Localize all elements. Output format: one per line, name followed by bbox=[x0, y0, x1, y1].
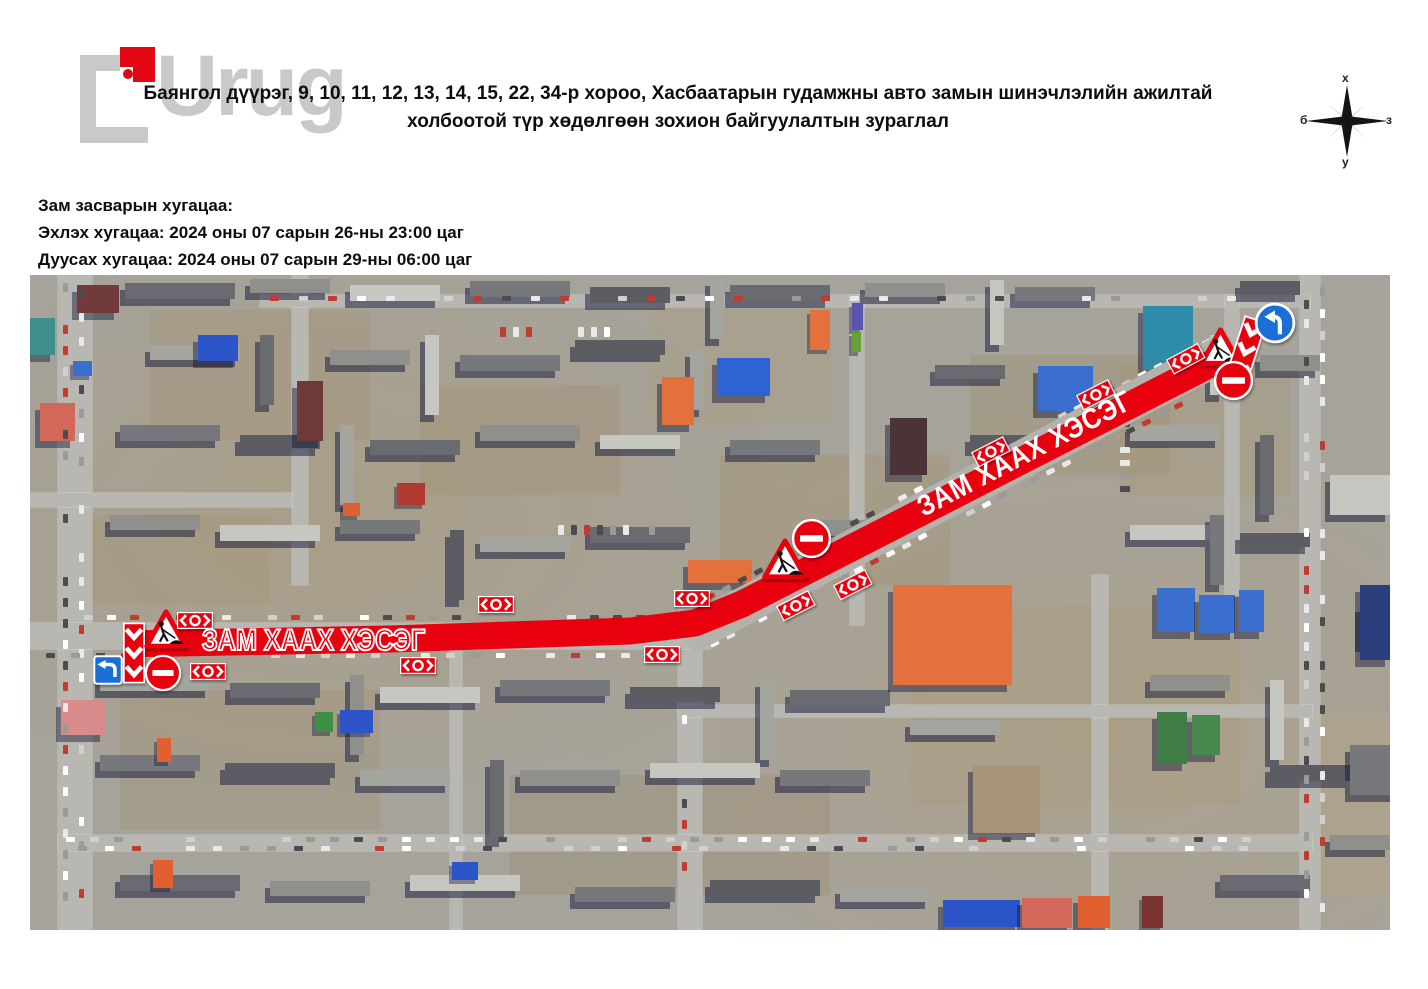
compass-west-label: б bbox=[1300, 113, 1307, 127]
barrier-board-sign bbox=[644, 646, 680, 668]
barrier-board-sign bbox=[674, 590, 710, 612]
schedule-heading: Зам засварын хугацаа: bbox=[38, 192, 472, 219]
logo-dot bbox=[123, 69, 133, 79]
title-line-2: холбоотой түр хөдөлгөөн зохион байгуулал… bbox=[44, 108, 1312, 136]
barrier-board-sign bbox=[400, 657, 436, 679]
repair-schedule: Зам засварын хугацаа: Эхлэх хугацаа: 202… bbox=[38, 192, 472, 273]
no-entry-sign-left bbox=[144, 654, 182, 697]
no-entry-sign-right bbox=[1213, 360, 1254, 406]
title-line-1: Баянгол дүүрэг, 9, 10, 11, 12, 13, 14, 1… bbox=[44, 80, 1312, 108]
poster-page: Urug Баянгол дүүрэг, 9, 10, 11, 12, 13, … bbox=[0, 0, 1428, 989]
closure-label-horizontal: ЗАМ ХААХ ХЭСЭГ bbox=[202, 626, 425, 656]
no-entry-sign-mid bbox=[791, 518, 832, 564]
compass-east-label: з bbox=[1386, 113, 1392, 127]
compass-rose: х у б з bbox=[1302, 75, 1392, 170]
barrier-board-sign bbox=[478, 596, 514, 618]
compass-star-icon bbox=[1302, 75, 1392, 165]
chevron-barrier-panel-left bbox=[123, 617, 145, 694]
barrier-board-sign bbox=[190, 663, 226, 685]
detour-left-sign bbox=[93, 655, 123, 690]
compass-south-label: у bbox=[1342, 155, 1349, 169]
schedule-end: Дуусах хугацаа: 2024 оны 07 сарын 29-ны … bbox=[38, 246, 472, 273]
satellite-map: ЗАМ ХААХ ХЭСЭГ ЗАМ ХААХ ХЭСЭГ bbox=[30, 275, 1390, 930]
page-title: Баянгол дүүрэг, 9, 10, 11, 12, 13, 14, 1… bbox=[44, 80, 1312, 136]
schedule-start: Эхлэх хугацаа: 2024 оны 07 сарын 26-ны 2… bbox=[38, 219, 472, 246]
keep-left-sign bbox=[1254, 302, 1296, 349]
compass-north-label: х bbox=[1342, 71, 1349, 85]
